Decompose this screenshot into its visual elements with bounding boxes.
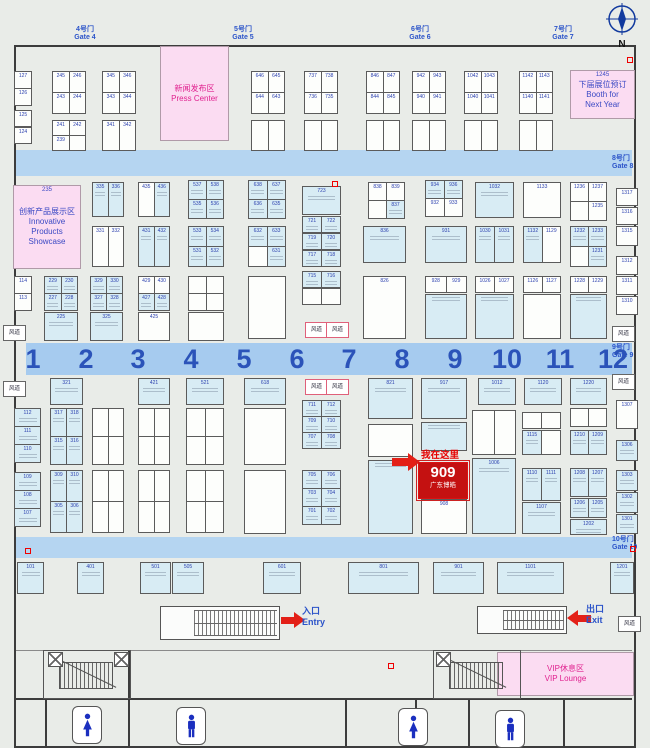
booth-block: 601: [263, 562, 301, 594]
alignment-mark: [388, 663, 394, 669]
booth-cell: 847: [384, 72, 401, 93]
booth-row: 126: [15, 89, 32, 106]
booth-number: 716: [322, 272, 340, 279]
booth-row: 521: [187, 379, 224, 405]
booth-row: [139, 437, 170, 465]
booth-row: 343344: [103, 93, 136, 114]
booth-row: [465, 121, 498, 151]
booth-row: 1107: [523, 503, 561, 534]
booth-cell: 1133: [524, 183, 561, 218]
booth-row: 932933: [426, 199, 463, 217]
booth-number: 718: [322, 251, 340, 258]
booth-cell: 1141: [537, 93, 554, 114]
booth-cell: 1030: [476, 227, 495, 263]
booth-row: 721722: [303, 217, 341, 233]
booth-block: 10301031: [475, 226, 514, 263]
booth-cell: [322, 121, 339, 151]
booth-cell: [187, 437, 206, 465]
booth-number: 310: [67, 471, 82, 478]
booth-number: 1107: [523, 503, 560, 510]
booth-cell: [473, 411, 495, 455]
booth-cell: 709: [303, 417, 322, 433]
booth-cell: 343: [103, 93, 120, 114]
booth-cell: 227: [45, 294, 62, 311]
booth-cell: 837: [387, 201, 405, 219]
aisle-number: 11: [545, 341, 575, 377]
booth-number: 321: [51, 379, 82, 386]
booth-number: 710: [322, 417, 340, 424]
zone-press-center: 新闻发布区Press Center: [160, 46, 229, 141]
booth-row: 701702: [303, 507, 341, 525]
booth-row: 10421043: [465, 72, 498, 93]
booth-block: 11261127: [523, 276, 561, 293]
booth-number: 432: [155, 227, 170, 234]
booth-row: [187, 409, 224, 437]
booth-block: 1303: [616, 470, 638, 491]
booth-cell: 821: [369, 379, 413, 419]
booth-block: 721722: [302, 216, 341, 233]
booth-number: 1209: [589, 431, 606, 438]
booth-cell: [537, 121, 554, 151]
booth-number: 1315: [617, 227, 637, 234]
booth-cell: [476, 295, 514, 339]
booth-number: 1233: [589, 227, 606, 234]
gate-label-en: Gate 4: [53, 34, 117, 42]
booth-cell: 738: [322, 72, 339, 93]
booth-row: 737738: [305, 72, 338, 93]
booth-cell: [571, 295, 607, 339]
booth-cell: 316: [67, 437, 83, 465]
booth-number: 1316: [617, 208, 637, 215]
booth-row: [139, 502, 170, 533]
booth-block: 737738736735: [304, 71, 338, 114]
booth-number: 631: [268, 247, 286, 254]
booth-block: [248, 276, 286, 339]
elevator: [114, 652, 129, 667]
booth-number: 941: [430, 93, 446, 100]
booth-cell: 110: [15, 445, 41, 463]
booth-cell: 125: [15, 111, 32, 127]
booth-cell: 1205: [589, 499, 607, 518]
exit-label: 出口 Exit: [586, 604, 604, 626]
booth-row: 229230: [45, 277, 78, 294]
booth-cell: 1235: [589, 202, 607, 221]
booth-cell: 931: [426, 227, 467, 263]
booth-row: 113: [15, 294, 32, 311]
booth-cell: 1233: [589, 227, 607, 247]
booth-cell: [109, 502, 125, 533]
aisle-number: 4: [176, 341, 206, 377]
booth-number: 1101: [498, 563, 563, 570]
booth-row: 425: [139, 313, 170, 341]
booth-number: 1302: [617, 493, 637, 500]
booth-block: 632633631: [248, 226, 286, 267]
booth-cell: 1041: [482, 93, 499, 114]
booth-number: 521: [187, 379, 223, 386]
booth-cell: [495, 411, 517, 455]
booth-row: 1115: [523, 431, 561, 455]
booth-block: 533534531532: [188, 226, 224, 267]
booth-cell: [139, 502, 155, 533]
booth-number: 431: [139, 227, 154, 234]
exit-label-en: Exit: [586, 615, 604, 626]
booth-block: [366, 120, 400, 151]
booth-block: 335336: [92, 182, 124, 217]
booth-row: 711712: [303, 401, 341, 417]
booth-cell: 722: [322, 217, 341, 233]
booth-number: 1027: [495, 277, 513, 284]
booth-row: 531532: [189, 247, 224, 267]
aisle-number: 5: [229, 341, 259, 377]
booth-block: 12281229: [570, 276, 607, 293]
booth-block: 12081207: [570, 468, 607, 497]
wall-line: [468, 698, 470, 746]
booth-number: 1231: [589, 247, 606, 254]
booth-number: 110: [15, 445, 40, 452]
booth-row: 11101111: [523, 469, 561, 501]
booth-row: 703704: [303, 489, 341, 507]
booth-cell: 341: [103, 121, 120, 151]
booth-number: 702: [322, 507, 340, 514]
booth-cell: [322, 289, 341, 305]
booth-cell: 344: [120, 93, 137, 114]
booth-number: 1031: [495, 227, 513, 234]
booth-cell: 1120: [525, 379, 562, 405]
booth-row: 10401041: [465, 93, 498, 114]
booth-cell: 328: [107, 294, 123, 311]
booth-row: 1303: [617, 471, 638, 491]
booth-number: 309: [51, 471, 66, 478]
booth-number: 318: [67, 409, 82, 416]
staircase-steps: [59, 662, 113, 689]
booth-row: 1301: [617, 515, 638, 534]
booth-row: 618: [245, 379, 286, 405]
booth-number: 435: [139, 183, 154, 190]
booth-cell: 643: [269, 93, 286, 114]
booth-row: 107: [15, 509, 41, 527]
booth-cell: 1208: [571, 469, 589, 497]
booth-number: 1301: [617, 515, 637, 522]
booth-number: 1210: [571, 431, 588, 438]
booth-row: 12321233: [571, 227, 607, 247]
exit-escalator: [477, 606, 567, 634]
booth-cell: 538: [207, 181, 225, 200]
booth-row: 12061205: [571, 499, 607, 518]
booth-number: 1127: [543, 277, 561, 284]
booth-cell: 940: [413, 93, 430, 114]
booth-number: 1120: [525, 379, 561, 386]
booth-row: 917: [422, 379, 467, 419]
gate-label-cn: 5号门: [211, 26, 275, 34]
toilet-female-icon: [398, 708, 428, 746]
booth-number: 1206: [571, 499, 588, 506]
booth-cell: 901: [434, 563, 484, 594]
booth-number: 536: [207, 200, 224, 207]
booth-row: [305, 121, 338, 151]
booth-row: 844845: [367, 93, 400, 114]
booth-cell: 1140: [520, 93, 537, 114]
booth-row: [93, 502, 124, 533]
booth-number: 1142: [520, 72, 536, 79]
booth-row: [571, 409, 607, 427]
booth-row: 717718: [303, 251, 341, 267]
booth-cell: [187, 502, 206, 533]
booth-row: 1302: [617, 493, 638, 513]
booth-number: 633: [268, 227, 286, 234]
booth-block: [186, 408, 224, 465]
booth-cell: 245: [53, 72, 70, 93]
booth-number: 1030: [476, 227, 494, 234]
booth-row: 325: [91, 313, 123, 341]
booth-number: 243: [53, 93, 69, 100]
booth-cell: 228: [62, 294, 79, 311]
booth-cell: [139, 471, 155, 502]
booth-number: 901: [434, 563, 483, 570]
booth-block: 931: [425, 226, 467, 263]
aisle-band-lower: [16, 537, 632, 558]
elevator: [48, 652, 63, 667]
booth-block: 127126: [14, 71, 32, 106]
aisle-number: 7: [334, 341, 364, 377]
booth-cell: 107: [15, 509, 41, 527]
booth-number: 722: [322, 217, 340, 224]
booth-row: [520, 121, 553, 151]
booth-cell: 712: [322, 401, 341, 417]
booth-cell: [189, 313, 224, 341]
booth-row: 837: [369, 201, 405, 219]
booth-number: 645: [269, 72, 285, 79]
booth-number: 329: [91, 277, 106, 284]
booth-cell: 345: [103, 72, 120, 93]
booth-cell: [189, 277, 207, 294]
booth-row: [367, 121, 400, 151]
booth-row: 243244: [53, 93, 86, 114]
booth-block: [304, 120, 338, 151]
booth-number: 1205: [589, 499, 606, 506]
booth-number: 738: [322, 72, 338, 79]
zone-tag: 1245: [571, 72, 634, 78]
booth-number: 306: [67, 502, 82, 509]
booth-row: 401: [78, 563, 104, 594]
vent-box: 风道: [326, 322, 349, 338]
booth-cell: 839: [387, 183, 405, 201]
booth-cell: 1042: [465, 72, 482, 93]
booth-number: 317: [51, 409, 66, 416]
booth-number: 344: [120, 93, 136, 100]
booth-number: 837: [387, 201, 404, 208]
booth-cell: 505: [173, 563, 204, 594]
booth-block: 12101209: [570, 430, 607, 455]
booth-cell: 631: [268, 247, 287, 267]
booth-cell: 318: [67, 409, 83, 437]
booth-cell: 932: [426, 199, 445, 217]
booth-row: 1032: [476, 183, 514, 218]
booth-block: 801: [348, 562, 419, 594]
booth-row: 719720: [303, 234, 341, 250]
booth-number: 1110: [523, 469, 541, 476]
booth-block: [138, 470, 170, 533]
booth-block: 928929: [425, 276, 467, 293]
booth-number: 737: [305, 72, 321, 79]
booth-row: [139, 471, 170, 502]
booth-cell: 1107: [523, 503, 561, 534]
booth-number: 928: [426, 277, 446, 284]
booth-number: 1140: [520, 93, 536, 100]
booth-cell: 845: [384, 93, 401, 114]
booth-row: 901: [434, 563, 484, 594]
booth-number: 228: [62, 294, 78, 301]
booth-row: 431432: [139, 227, 170, 267]
booth-number: 844: [367, 93, 383, 100]
booth-block: 435436: [138, 182, 170, 217]
booth-block: [251, 120, 285, 151]
booth-row: 1316: [617, 208, 638, 225]
booth-number: 701: [303, 507, 321, 514]
zone-label: VIP Lounge: [545, 674, 587, 684]
vent-box: 风道: [305, 322, 328, 338]
booth-cell: 124: [15, 128, 32, 144]
booth-number: 940: [413, 93, 429, 100]
booth-number: 643: [269, 93, 285, 100]
booth-number: 343: [103, 93, 119, 100]
booth-cell: 701: [303, 507, 322, 525]
booth-cell: 928: [426, 277, 447, 293]
booth-cell: 646: [252, 72, 269, 93]
booth-cell: 1232: [571, 227, 589, 247]
entry-label-cn: 入口: [302, 606, 325, 617]
booth-row: [476, 295, 514, 339]
booth-cell: 243: [53, 93, 70, 114]
gate-label-en: Gate 5: [211, 34, 275, 42]
booth-cell: 429: [139, 277, 155, 294]
booth-row: 723: [303, 187, 341, 215]
booth-row: [303, 289, 341, 305]
booth-block: 1120: [524, 378, 562, 405]
booth-block: 321: [50, 378, 83, 405]
booth-block: [570, 294, 607, 339]
gate-label-cn: 6号门: [388, 26, 452, 34]
booth-cell: 737: [305, 72, 322, 93]
booth-cell: 1142: [520, 72, 537, 93]
booth-number: 1220: [571, 379, 606, 386]
wall-line: [563, 698, 565, 746]
booth-number: 706: [322, 471, 340, 478]
aisle-number: 3: [123, 341, 153, 377]
booth-block: [570, 408, 607, 427]
booth-number: 1141: [537, 93, 553, 100]
booth-cell: 112: [15, 409, 41, 427]
gate-label-cn: 10号门: [612, 536, 650, 544]
booth-row: 11421143: [520, 72, 553, 93]
booth-cell: 702: [322, 507, 341, 525]
booth-row: 421: [139, 379, 170, 405]
booth-number: 1311: [617, 277, 637, 284]
booth-cell: 306: [67, 502, 83, 533]
booth-number: 242: [70, 121, 86, 128]
alignment-mark: [25, 548, 31, 554]
booth-cell: 636: [249, 200, 268, 219]
booth-block: 501: [140, 562, 171, 594]
booth-number: 125: [15, 111, 31, 118]
booth-cell: 707: [303, 433, 322, 449]
booth-cell: 428: [155, 294, 171, 311]
booth-block: 711712709710707708: [302, 400, 341, 449]
booth-block: 341342: [102, 120, 136, 151]
booth-block: [464, 120, 498, 151]
booth-block: 10261027: [475, 276, 514, 293]
booth-block: 245246243244: [52, 71, 86, 114]
booth-row: [249, 277, 286, 339]
booth-row: 241242: [53, 121, 86, 136]
booth-cell: 1220: [571, 379, 607, 405]
booth-number: 838: [369, 183, 386, 190]
booth-number: 1006: [473, 459, 515, 466]
booth-row: 124: [15, 128, 32, 144]
booth-block: 1311: [616, 276, 638, 295]
booth-cell: 325: [91, 313, 123, 341]
booth-cell: [520, 121, 537, 151]
booth-number: 239: [53, 136, 69, 143]
booth-cell: 632: [249, 227, 268, 247]
booth-cell: 1306: [617, 441, 638, 461]
booth-row: [369, 461, 413, 534]
booth-cell: 532: [207, 247, 225, 267]
booth-number: 113: [15, 294, 31, 301]
booth-number: 717: [303, 251, 321, 258]
booth-block: 1107: [522, 502, 561, 534]
booth-number: 112: [15, 409, 40, 416]
booth-block: [475, 294, 514, 339]
zone-label: VIP休息区: [547, 664, 584, 674]
booth-row: 1120: [525, 379, 562, 405]
booth-number: 537: [189, 181, 206, 188]
booth-cell: [93, 409, 109, 437]
booth-number: 436: [155, 183, 170, 190]
booth-cell: 114: [15, 277, 32, 294]
booth-number: 1012: [479, 379, 515, 386]
booth-number: 917: [422, 379, 466, 386]
booth-cell: 229: [45, 277, 62, 294]
booth-cell: [70, 136, 87, 151]
booth-number: 715: [303, 272, 321, 279]
booth-block: [519, 120, 553, 151]
booth-row: 10261027: [476, 277, 514, 293]
staircase-steps: [449, 662, 503, 689]
booth-number: 1312: [617, 257, 637, 264]
booth-cell: [426, 295, 467, 339]
booth-number: 305: [51, 502, 66, 509]
booth-block: [472, 410, 516, 455]
booth-block: [522, 412, 561, 429]
booth-block: 1317: [616, 188, 638, 206]
booth-cell: [465, 121, 482, 151]
zone-innovative-showcase: 235创新产品展示区Innovative ProductsShowcase: [13, 185, 81, 269]
gate-label-cn: 8号门: [612, 155, 650, 163]
booth-number: 638: [249, 181, 267, 188]
booth-block: 618: [244, 378, 286, 405]
booth-block: [188, 276, 224, 311]
booth-cell: 719: [303, 234, 322, 250]
booth-row: [187, 471, 224, 502]
booth-number: 342: [120, 121, 136, 128]
booth-row: 1012: [479, 379, 516, 405]
booth-number: 1317: [617, 189, 637, 196]
booth-block: [244, 470, 286, 534]
booth-block: 908: [421, 499, 467, 534]
booth-row: 1317: [617, 189, 638, 206]
booth-number: 244: [70, 93, 86, 100]
booth-block: 1032: [475, 182, 514, 218]
